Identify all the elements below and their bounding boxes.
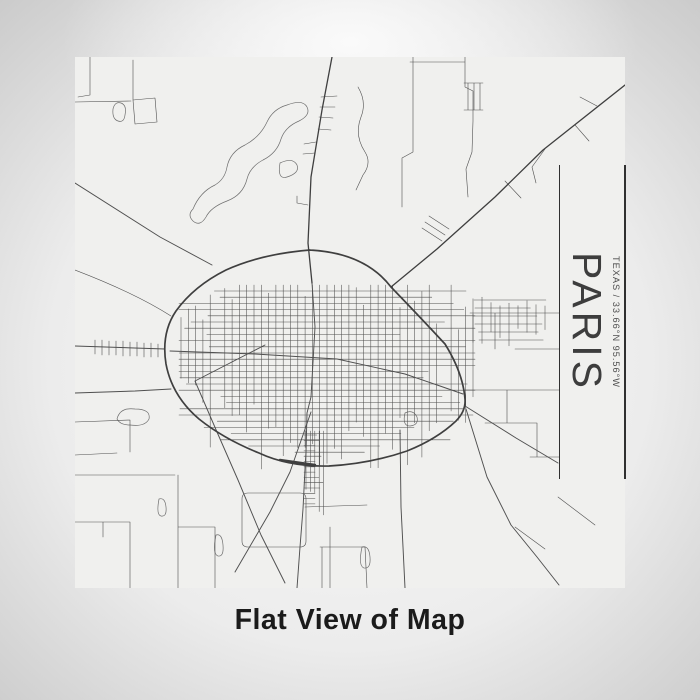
title-rule-right [624, 165, 626, 479]
city-street-grid [179, 285, 546, 515]
city-name: PARIS [566, 165, 608, 479]
water-features [113, 102, 418, 568]
product-mockup: { "page": { "background": { "center": "#… [0, 0, 700, 700]
secondary-roads [75, 183, 559, 588]
major-roads [165, 57, 625, 466]
rotated-title: TEXAS / 33.66°N 95.56°W PARIS [561, 165, 624, 479]
city-coordinates: TEXAS / 33.66°N 95.56°W [610, 165, 621, 479]
view-caption: Flat View of Map [0, 604, 700, 637]
map-graphic [75, 57, 625, 588]
minor-roads [75, 57, 597, 588]
map-title-block: TEXAS / 33.66°N 95.56°W PARIS [559, 165, 625, 479]
map-print: TEXAS / 33.66°N 95.56°W PARIS [75, 57, 625, 588]
title-rule-left [559, 165, 561, 479]
